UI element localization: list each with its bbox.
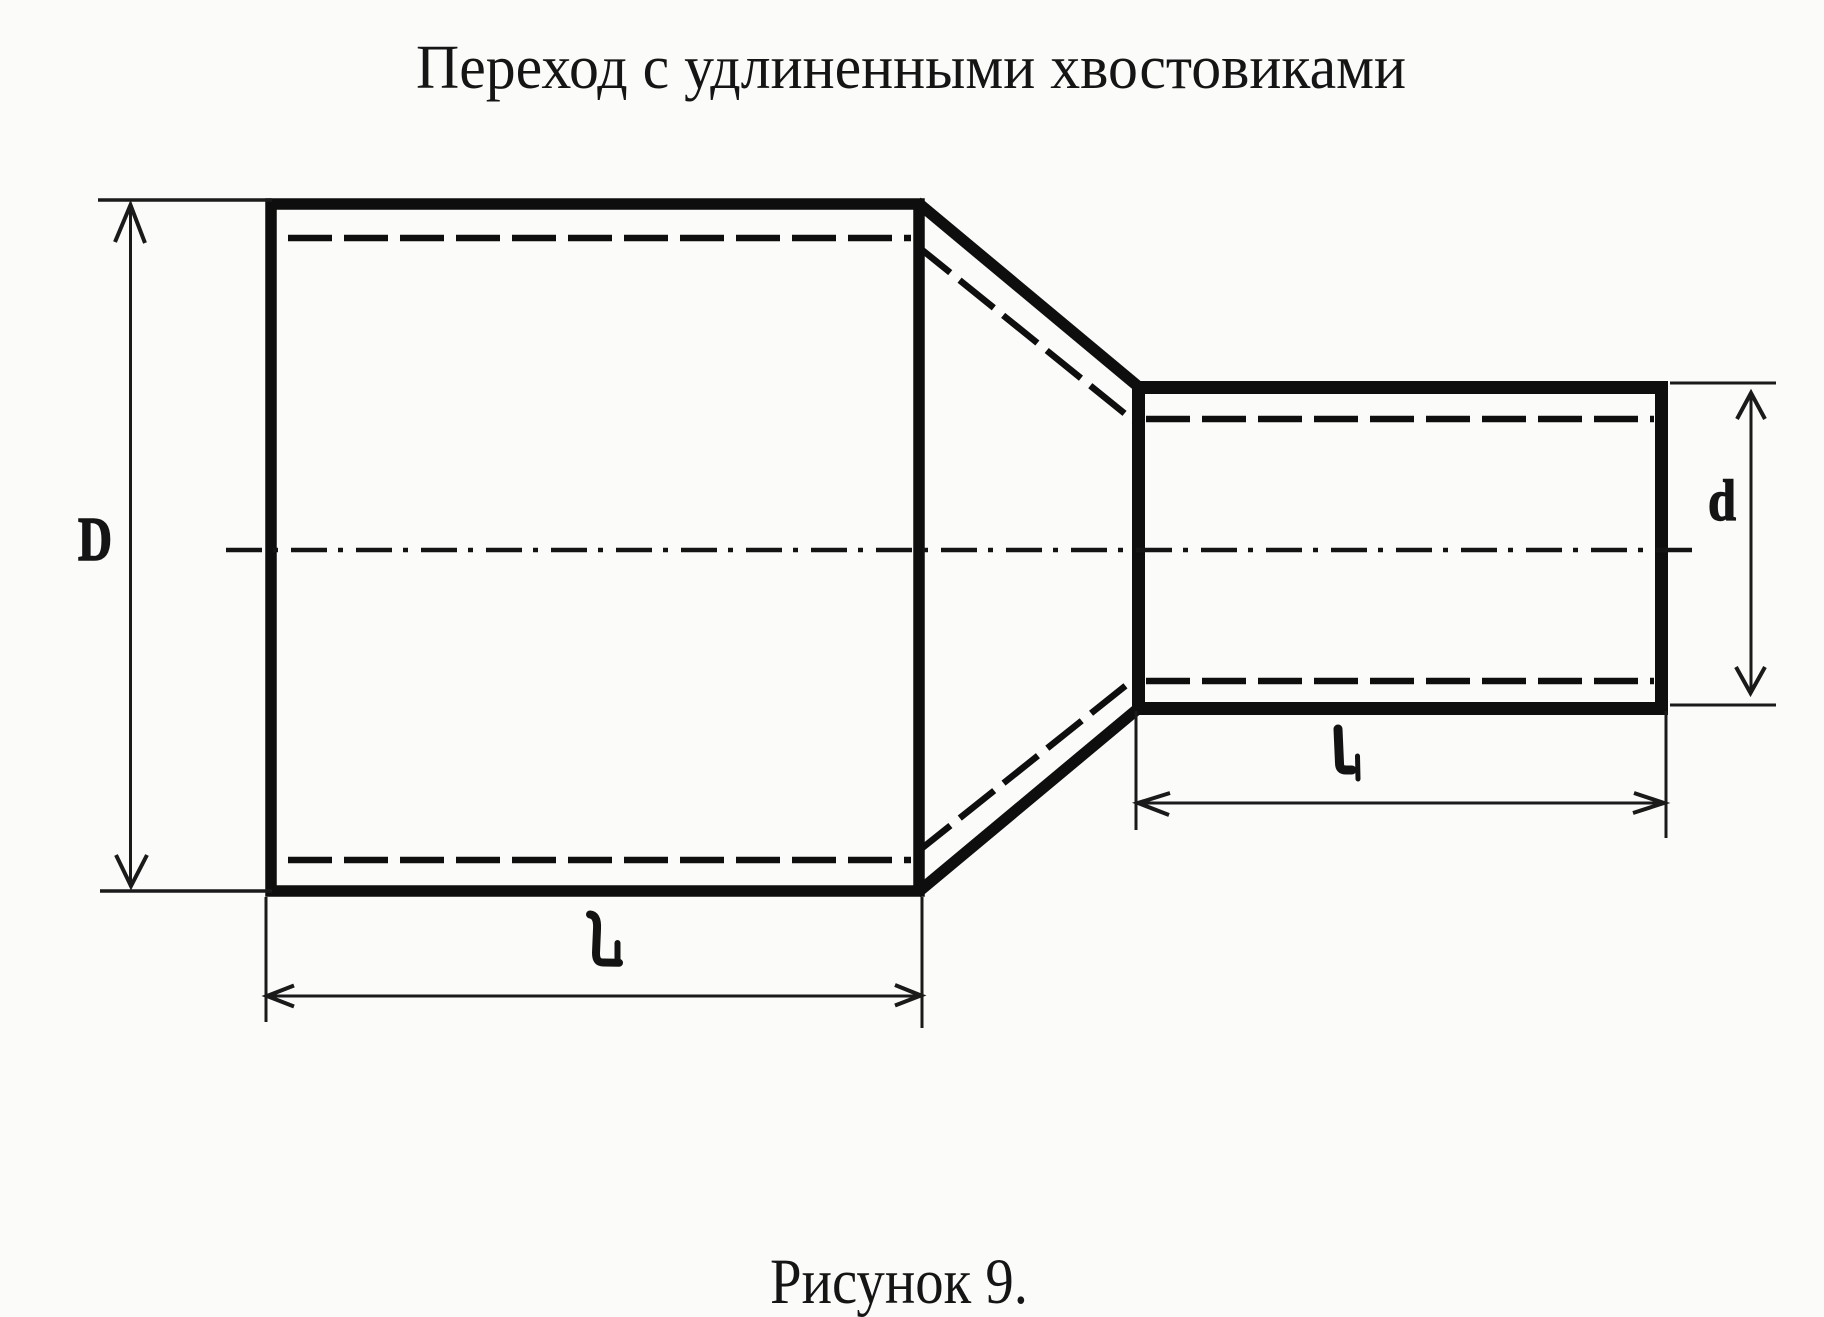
svg-text:Рисунок 9.: Рисунок 9. <box>770 1246 1028 1317</box>
svg-text:Переход с удлиненными хвостови: Переход с удлиненными хвостовиками <box>416 34 1406 102</box>
svg-text:D: D <box>78 506 112 574</box>
svg-text:d: d <box>1708 468 1736 533</box>
